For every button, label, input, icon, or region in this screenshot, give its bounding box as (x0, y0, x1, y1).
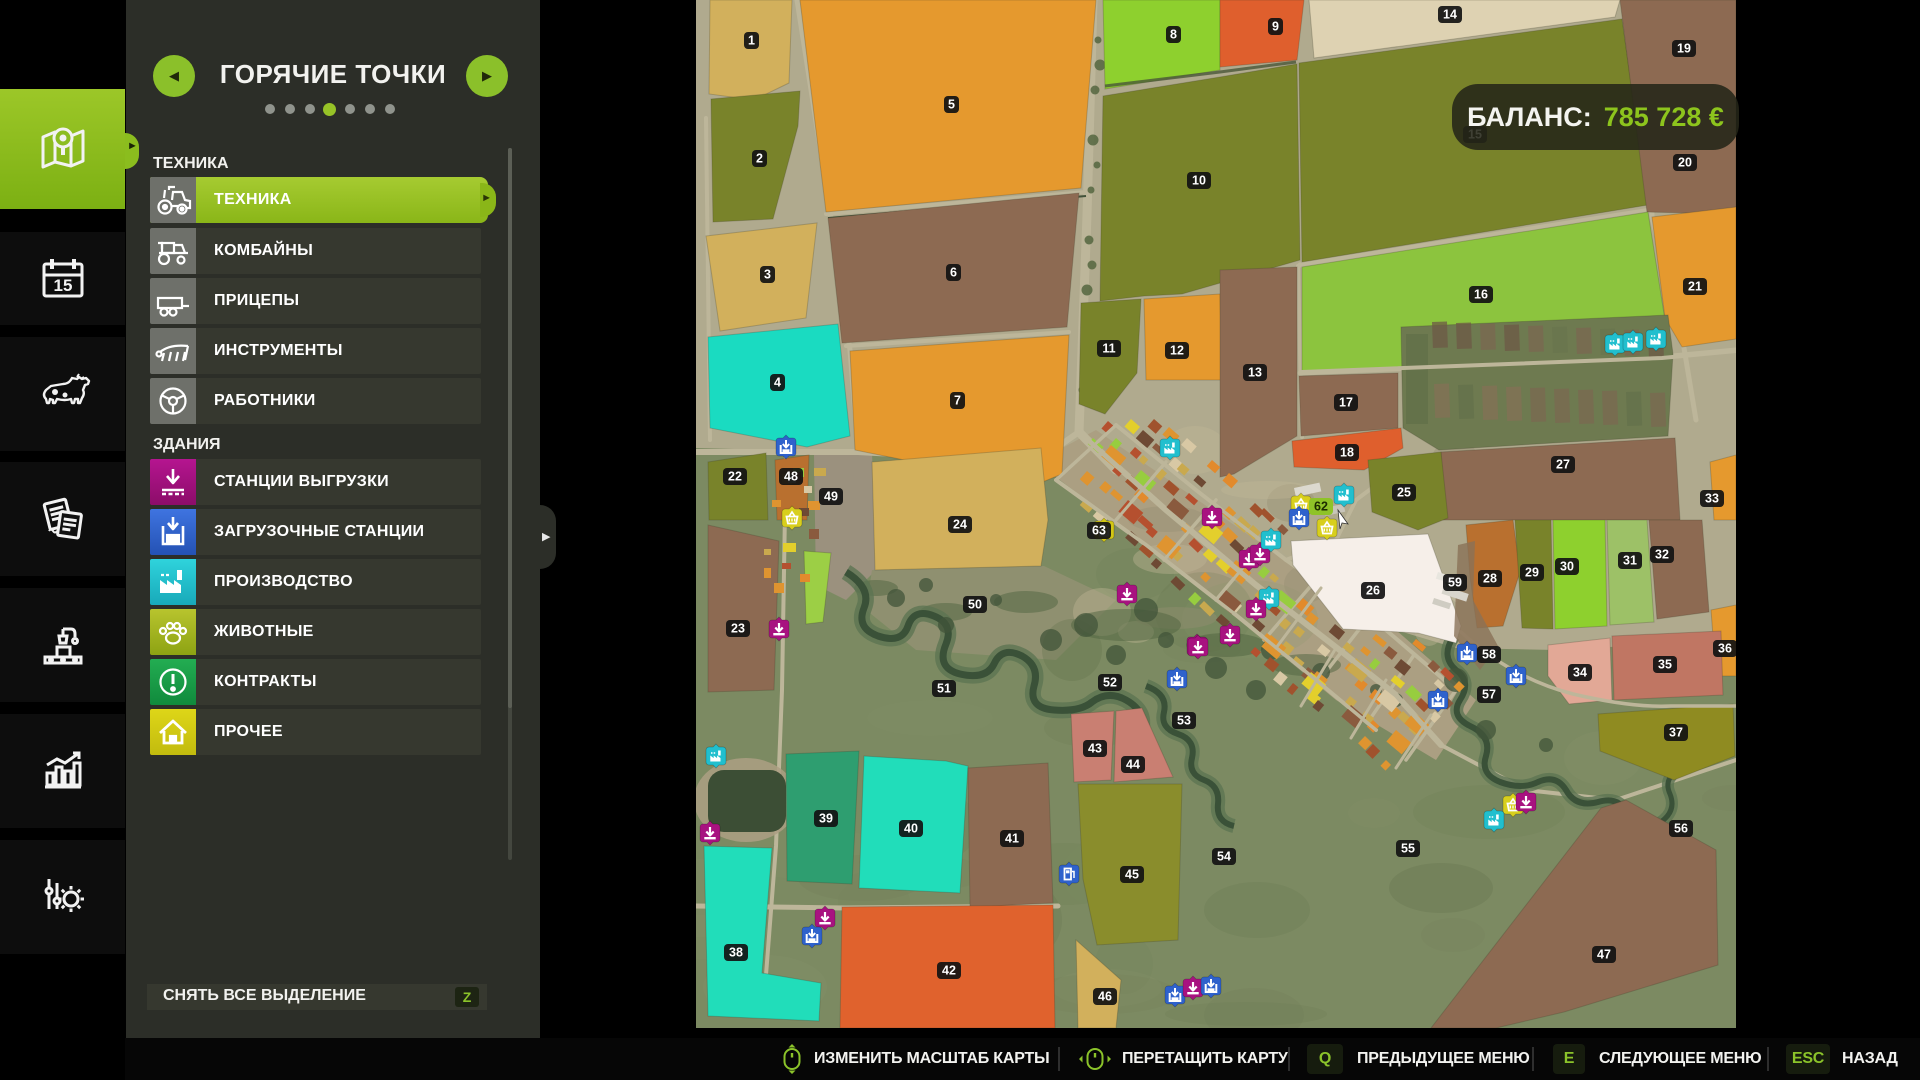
svg-text:11: 11 (1102, 342, 1115, 356)
svg-text:31: 31 (1623, 554, 1637, 568)
svg-text:35: 35 (1658, 658, 1672, 672)
svg-text:54: 54 (1217, 850, 1231, 864)
svg-text:12: 12 (1170, 344, 1184, 358)
svg-text:36: 36 (1718, 642, 1732, 656)
svg-text:10: 10 (1192, 174, 1206, 188)
svg-text:15: 15 (53, 276, 72, 295)
svg-text:49: 49 (824, 490, 838, 504)
svg-text:25: 25 (1397, 486, 1411, 500)
svg-text:29: 29 (1525, 566, 1539, 580)
svg-text:52: 52 (1103, 676, 1117, 690)
svg-text:22: 22 (728, 470, 742, 484)
svg-text:3: 3 (764, 268, 771, 282)
svg-text:21: 21 (1688, 280, 1702, 294)
svg-text:4: 4 (774, 376, 781, 390)
svg-text:34: 34 (1573, 666, 1587, 680)
svg-text:37: 37 (1669, 726, 1683, 740)
svg-text:39: 39 (819, 812, 833, 826)
svg-text:14: 14 (1443, 8, 1457, 22)
svg-text:6: 6 (950, 266, 957, 280)
svg-text:28: 28 (1483, 572, 1497, 586)
svg-text:2: 2 (756, 152, 763, 166)
svg-text:40: 40 (904, 822, 918, 836)
svg-text:32: 32 (1655, 548, 1669, 562)
svg-text:8: 8 (1170, 28, 1177, 42)
svg-text:19: 19 (1677, 42, 1691, 56)
svg-text:16: 16 (1474, 288, 1488, 302)
svg-text:45: 45 (1125, 868, 1139, 882)
svg-text:30: 30 (1560, 560, 1574, 574)
svg-text:57: 57 (1482, 688, 1496, 702)
svg-text:55: 55 (1401, 842, 1415, 856)
svg-text:5: 5 (948, 98, 955, 112)
svg-text:42: 42 (942, 964, 956, 978)
svg-text:9: 9 (1272, 20, 1279, 34)
svg-text:53: 53 (1177, 714, 1191, 728)
svg-text:62: 62 (1314, 500, 1328, 514)
svg-text:44: 44 (1126, 758, 1140, 772)
svg-text:20: 20 (1678, 156, 1692, 170)
svg-text:7: 7 (954, 394, 961, 408)
svg-text:41: 41 (1005, 832, 1019, 846)
svg-text:46: 46 (1098, 990, 1112, 1004)
svg-text:33: 33 (1705, 492, 1719, 506)
svg-text:59: 59 (1448, 576, 1462, 590)
svg-text:63: 63 (1092, 524, 1106, 538)
svg-text:50: 50 (968, 598, 982, 612)
svg-text:27: 27 (1556, 458, 1570, 472)
svg-text:13: 13 (1248, 366, 1262, 380)
svg-text:51: 51 (937, 682, 951, 696)
svg-text:58: 58 (1482, 648, 1496, 662)
svg-text:47: 47 (1597, 948, 1611, 962)
svg-text:48: 48 (784, 470, 798, 484)
svg-text:38: 38 (729, 946, 743, 960)
svg-text:17: 17 (1339, 396, 1353, 410)
svg-text:56: 56 (1674, 822, 1688, 836)
svg-text:26: 26 (1366, 584, 1380, 598)
svg-text:1: 1 (748, 34, 755, 48)
svg-text:43: 43 (1088, 742, 1102, 756)
svg-text:23: 23 (731, 622, 745, 636)
svg-text:18: 18 (1340, 446, 1354, 460)
svg-text:24: 24 (953, 518, 967, 532)
